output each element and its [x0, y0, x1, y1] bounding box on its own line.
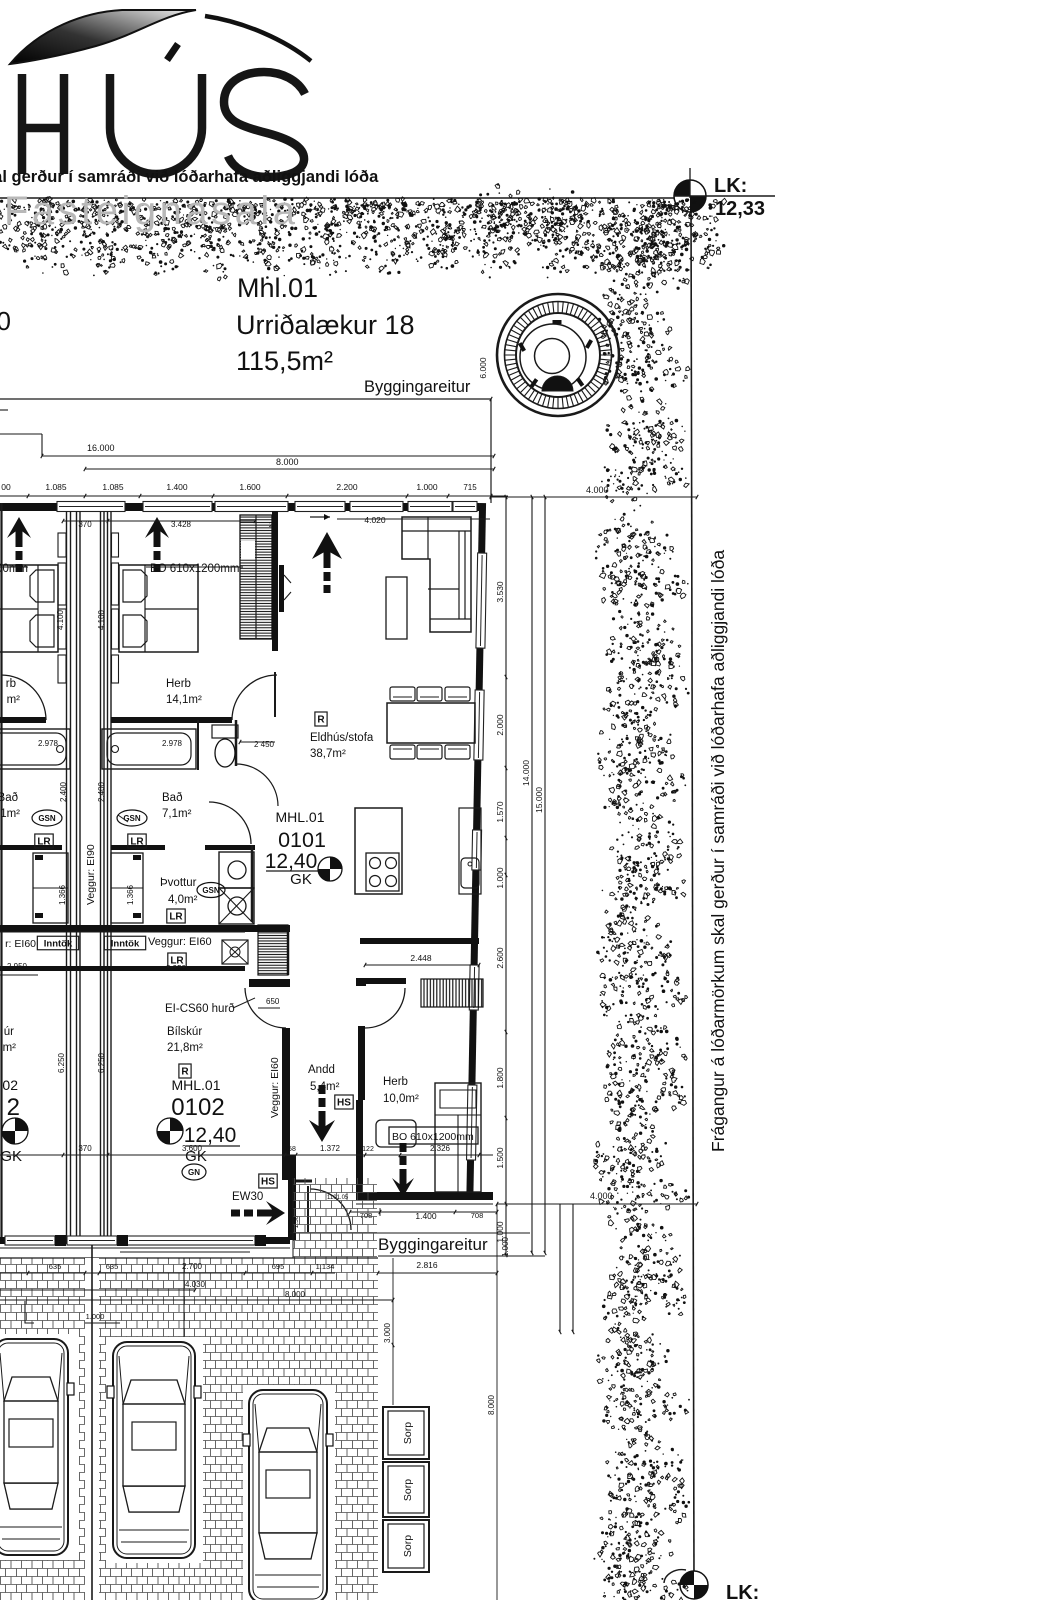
svg-text:1m²: 1m²	[0, 808, 20, 820]
svg-text:2.400: 2.400	[97, 781, 106, 802]
svg-text:Sorp: Sorp	[402, 1422, 414, 1444]
svg-text:Byggingareitur: Byggingareitur	[364, 378, 471, 396]
svg-text:4,0m²: 4,0m²	[168, 894, 198, 906]
svg-text:158: 158	[284, 1146, 296, 1153]
svg-text:Bað: Bað	[162, 792, 182, 804]
svg-text:r: EI60: r: EI60	[5, 938, 36, 950]
svg-text:EI-CS60 hurð: EI-CS60 hurð	[165, 1003, 235, 1015]
svg-text:4.030: 4.030	[185, 1280, 206, 1289]
svg-text:10: 10	[0, 306, 11, 336]
svg-text:BO 610x1200mm: BO 610x1200mm	[392, 1131, 474, 1143]
svg-text:2.326: 2.326	[430, 1144, 451, 1153]
svg-text:Inntök: Inntök	[44, 938, 73, 949]
svg-text:Herb: Herb	[166, 678, 191, 690]
svg-text:BO 610x1200mm: BO 610x1200mm	[150, 563, 240, 575]
svg-text:Andd: Andd	[308, 1064, 335, 1076]
svg-text:LR: LR	[130, 837, 144, 848]
svg-text:115,5m²: 115,5m²	[236, 346, 333, 376]
svg-text:1.000: 1.000	[86, 1312, 105, 1321]
svg-text:4.000: 4.000	[590, 1191, 613, 1201]
svg-text:4.100: 4.100	[56, 609, 65, 630]
svg-text:0102: 0102	[171, 1094, 224, 1121]
svg-text:GK: GK	[290, 871, 312, 888]
svg-text:14.000: 14.000	[521, 760, 531, 786]
svg-text:Frágangur á lóðarmörkum skal g: Frágangur á lóðarmörkum skal gerður í sa…	[708, 550, 728, 1152]
svg-text:8.000: 8.000	[487, 1394, 496, 1415]
svg-text:635: 635	[106, 1262, 119, 1271]
svg-text:1.600: 1.600	[239, 482, 261, 492]
svg-text:MHL.01: MHL.01	[275, 809, 324, 825]
svg-text:Veggur: EI60: Veggur: EI60	[148, 936, 212, 948]
svg-text:Veggur: EI60: Veggur: EI60	[269, 1057, 281, 1118]
svg-text:HS: HS	[337, 1098, 351, 1109]
svg-text:LR: LR	[169, 912, 183, 923]
svg-text:2 450: 2 450	[254, 740, 275, 749]
svg-text:1.000: 1.000	[501, 1236, 510, 1257]
svg-text:1.000: 1.000	[495, 867, 505, 889]
svg-text:122: 122	[362, 1146, 374, 1153]
svg-text:1.400: 1.400	[415, 1211, 437, 1221]
svg-text:6.000: 6.000	[478, 357, 488, 379]
svg-text:Inntök: Inntök	[111, 938, 140, 949]
svg-text:Þvottur: Þvottur	[160, 877, 197, 889]
svg-text:22: 22	[269, 520, 277, 529]
svg-text:3.600: 3.600	[182, 1144, 203, 1153]
svg-text:2.978: 2.978	[38, 739, 59, 748]
svg-text:Veggur: EI90: Veggur: EI90	[85, 844, 97, 905]
svg-text:1.372: 1.372	[320, 1144, 341, 1153]
svg-text:3.530: 3.530	[495, 581, 505, 603]
svg-text:650: 650	[266, 997, 280, 1006]
svg-text:2.950: 2.950	[7, 962, 28, 971]
svg-text:6.250: 6.250	[97, 1052, 106, 1073]
svg-text:Urriðalækur 18: Urriðalækur 18	[236, 310, 415, 340]
svg-text:16.000: 16.000	[87, 443, 115, 453]
svg-text:0101: 0101	[278, 828, 326, 852]
svg-text:38,7m²: 38,7m²	[310, 748, 346, 760]
svg-text:00mm: 00mm	[0, 563, 28, 575]
svg-text:2: 2	[7, 1094, 20, 1121]
svg-text:Bað: Bað	[0, 792, 18, 804]
svg-text:1.085: 1.085	[102, 482, 124, 492]
svg-text:695: 695	[272, 1262, 285, 1271]
svg-text:12,40: 12,40	[265, 850, 318, 873]
svg-text:GN: GN	[188, 1168, 200, 1177]
svg-text:2.448: 2.448	[410, 953, 432, 963]
svg-text:708: 708	[471, 1211, 484, 1220]
svg-text:00: 00	[1, 482, 11, 492]
svg-text:R: R	[317, 715, 325, 726]
svg-text:6.250: 6.250	[57, 1052, 66, 1073]
svg-text:2.816: 2.816	[416, 1260, 438, 1270]
svg-text:1.085: 1.085	[45, 482, 67, 492]
svg-text:rb: rb	[6, 678, 16, 690]
svg-text:1.000: 1.000	[416, 482, 438, 492]
svg-text:1.366: 1.366	[58, 884, 67, 905]
svg-text:R: R	[181, 1067, 189, 1078]
svg-text:Byggingareitur: Byggingareitur	[378, 1235, 488, 1254]
svg-text:02: 02	[2, 1077, 18, 1093]
svg-text:2.950: 2.950	[166, 964, 187, 973]
svg-text:LK:: LK:	[714, 175, 747, 197]
svg-text:8.000: 8.000	[276, 457, 299, 467]
svg-text:úr: úr	[4, 1026, 14, 1038]
svg-text:2.978: 2.978	[162, 739, 183, 748]
svg-text:12,33: 12,33	[715, 198, 765, 220]
svg-text:LK:: LK:	[726, 1582, 759, 1600]
svg-text:Sorp: Sorp	[402, 1479, 414, 1501]
svg-text:Sorp: Sorp	[402, 1535, 414, 1557]
svg-text:HS: HS	[261, 1177, 275, 1188]
svg-text:GSN: GSN	[38, 814, 56, 823]
svg-text:Herb: Herb	[383, 1076, 408, 1088]
svg-text:7,1m²: 7,1m²	[162, 808, 192, 820]
svg-text:1.366: 1.366	[126, 884, 135, 905]
svg-text:2.400: 2.400	[59, 781, 68, 802]
svg-text:8.000: 8.000	[285, 1290, 306, 1299]
svg-text:3.000: 3.000	[383, 1322, 392, 1343]
svg-text:4.020: 4.020	[364, 515, 386, 525]
svg-text:2.000: 2.000	[495, 714, 505, 736]
svg-text:4.000: 4.000	[586, 485, 609, 495]
svg-text:Eldhús/stofa: Eldhús/stofa	[310, 732, 374, 744]
svg-text:2.200: 2.200	[336, 482, 358, 492]
svg-text:635: 635	[49, 1262, 62, 1271]
svg-text:Bílskúr: Bílskúr	[167, 1026, 202, 1038]
svg-text:kal gerður í samráði við lóðar: kal gerður í samráði við lóðarhafa aðlig…	[0, 168, 379, 186]
svg-text:14,1m²: 14,1m²	[166, 694, 202, 706]
svg-text:GSN: GSN	[202, 886, 220, 895]
svg-text:2.700: 2.700	[182, 1262, 203, 1271]
svg-text:LR: LR	[37, 837, 51, 848]
svg-text:EW30: EW30	[232, 1191, 263, 1203]
svg-text:m²: m²	[7, 694, 21, 706]
svg-text:Mhl.01: Mhl.01	[237, 273, 318, 303]
svg-text:GK: GK	[0, 1148, 22, 1165]
svg-text:m²: m²	[3, 1042, 17, 1054]
svg-text:715: 715	[463, 483, 477, 492]
svg-text:2.600: 2.600	[495, 947, 505, 969]
svg-text:1.400: 1.400	[166, 482, 188, 492]
svg-text:4.100: 4.100	[97, 609, 106, 630]
svg-text:1.134: 1.134	[316, 1262, 335, 1271]
svg-text:21,8m²: 21,8m²	[167, 1042, 203, 1054]
svg-text:370: 370	[78, 1144, 92, 1153]
svg-text:GSN: GSN	[123, 814, 141, 823]
svg-text:1.500: 1.500	[495, 1147, 505, 1169]
svg-text:MHL.01: MHL.01	[171, 1077, 220, 1093]
svg-text:1.800: 1.800	[495, 1067, 505, 1089]
svg-text:10,0m²: 10,0m²	[383, 1093, 419, 1105]
svg-text:15.000: 15.000	[534, 787, 544, 813]
svg-text:1.570: 1.570	[495, 801, 505, 823]
svg-text:Fasteignasala: Fasteignasala	[4, 189, 299, 233]
